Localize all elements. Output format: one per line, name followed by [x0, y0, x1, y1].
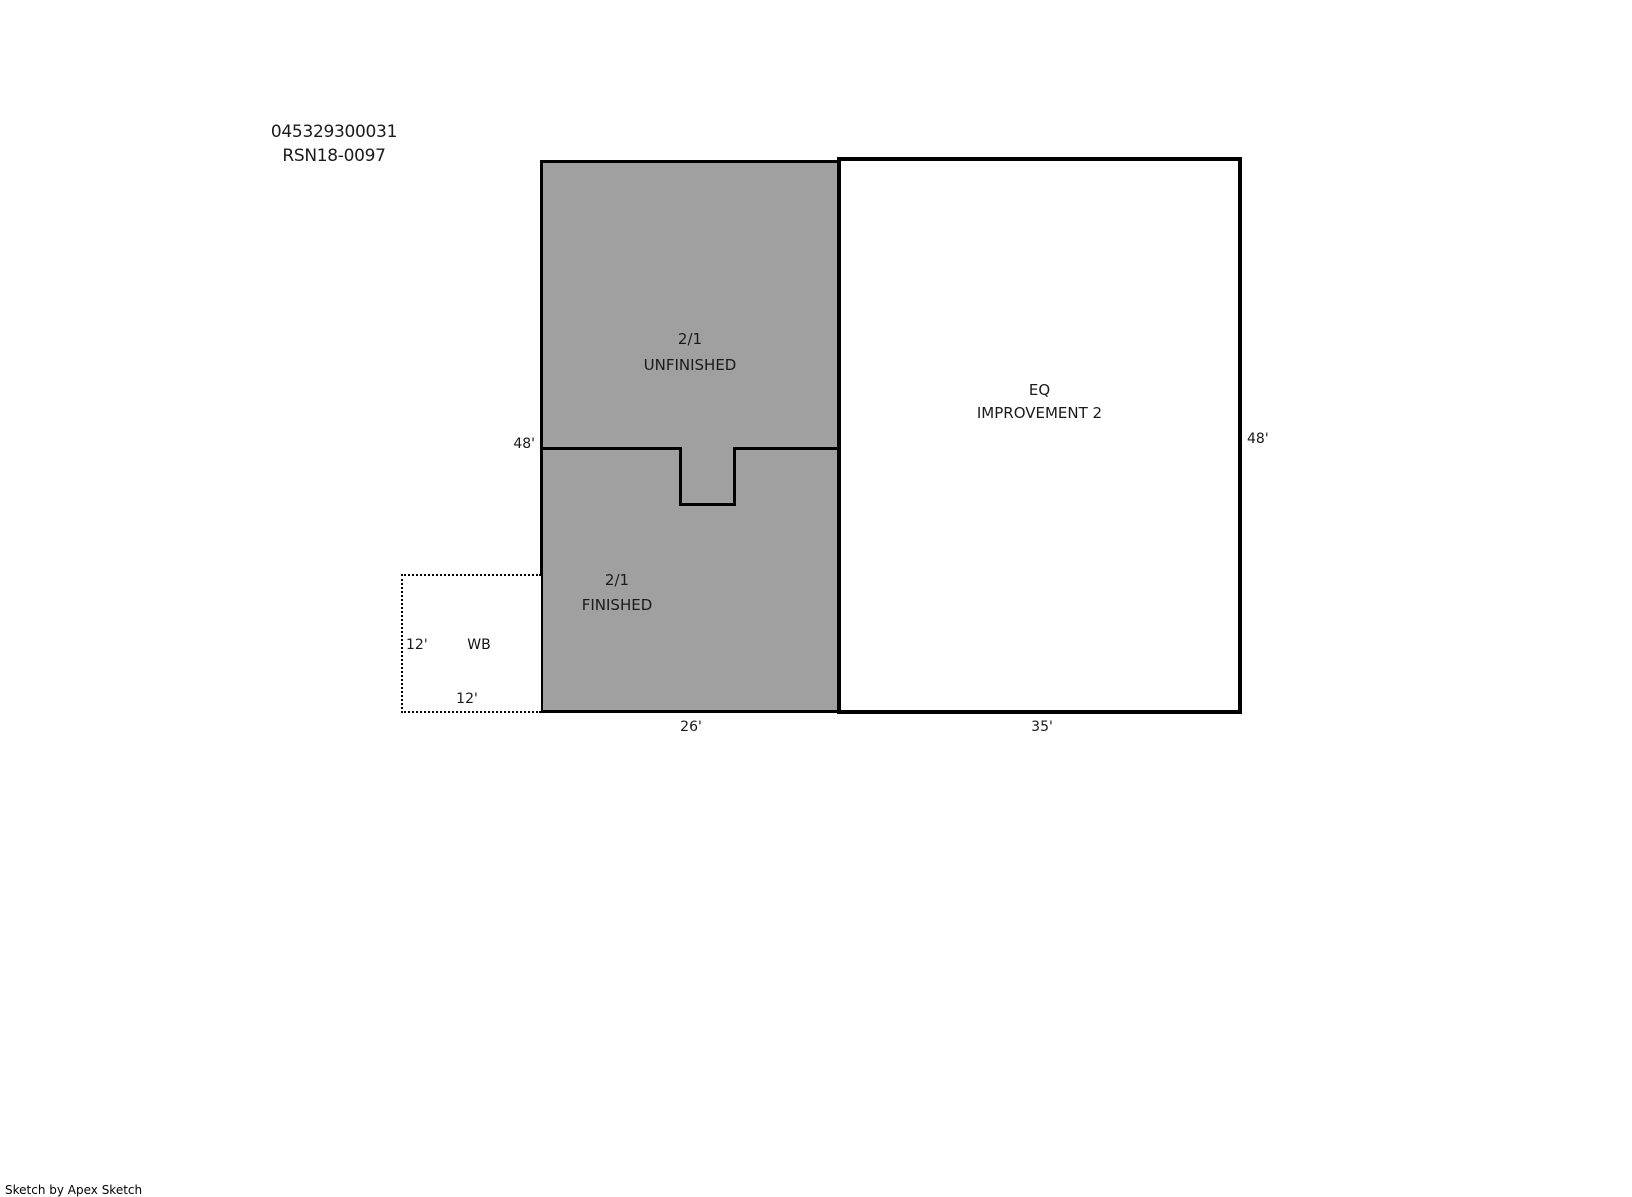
- parcel-header: 045329300031 RSN18-0097: [234, 120, 434, 168]
- area-divider-line-left: [540, 447, 679, 450]
- parcel-rsn-text: RSN18-0097: [234, 144, 434, 168]
- finished-area-ratio: 2/1: [517, 568, 717, 593]
- improvement2-area-label: EQ IMPROVEMENT 2: [837, 379, 1242, 425]
- finished-area-name: FINISHED: [517, 593, 717, 618]
- basement-width-dimension: 26': [661, 719, 721, 735]
- basement-building-outline: [540, 160, 840, 713]
- divider-notch-outline: [679, 447, 736, 506]
- unfinished-area-name: UNFINISHED: [540, 352, 840, 378]
- improvement2-area-name: IMPROVEMENT 2: [837, 402, 1242, 425]
- apex-sketch-page: 045329300031 RSN18-0097 2/1 UNFINISHED 2…: [0, 0, 1632, 1197]
- unfinished-area-label: 2/1 UNFINISHED: [540, 326, 840, 378]
- area-divider-line-right: [736, 447, 840, 450]
- improvement2-height-dimension: 48': [1247, 431, 1269, 447]
- finished-area-label: 2/1 FINISHED: [517, 568, 717, 618]
- sketch-credit-text: Sketch by Apex Sketch: [5, 1183, 142, 1197]
- wb-area-label: WB: [459, 637, 499, 653]
- wb-height-dimension: 12': [406, 637, 428, 653]
- basement-height-dimension: 48': [485, 436, 535, 452]
- improvement2-building-outline: [837, 157, 1242, 714]
- unfinished-area-ratio: 2/1: [540, 326, 840, 352]
- parcel-id-text: 045329300031: [234, 120, 434, 144]
- wb-width-dimension: 12': [447, 691, 487, 707]
- improvement2-area-code: EQ: [837, 379, 1242, 402]
- improvement2-width-dimension: 35': [1012, 719, 1072, 735]
